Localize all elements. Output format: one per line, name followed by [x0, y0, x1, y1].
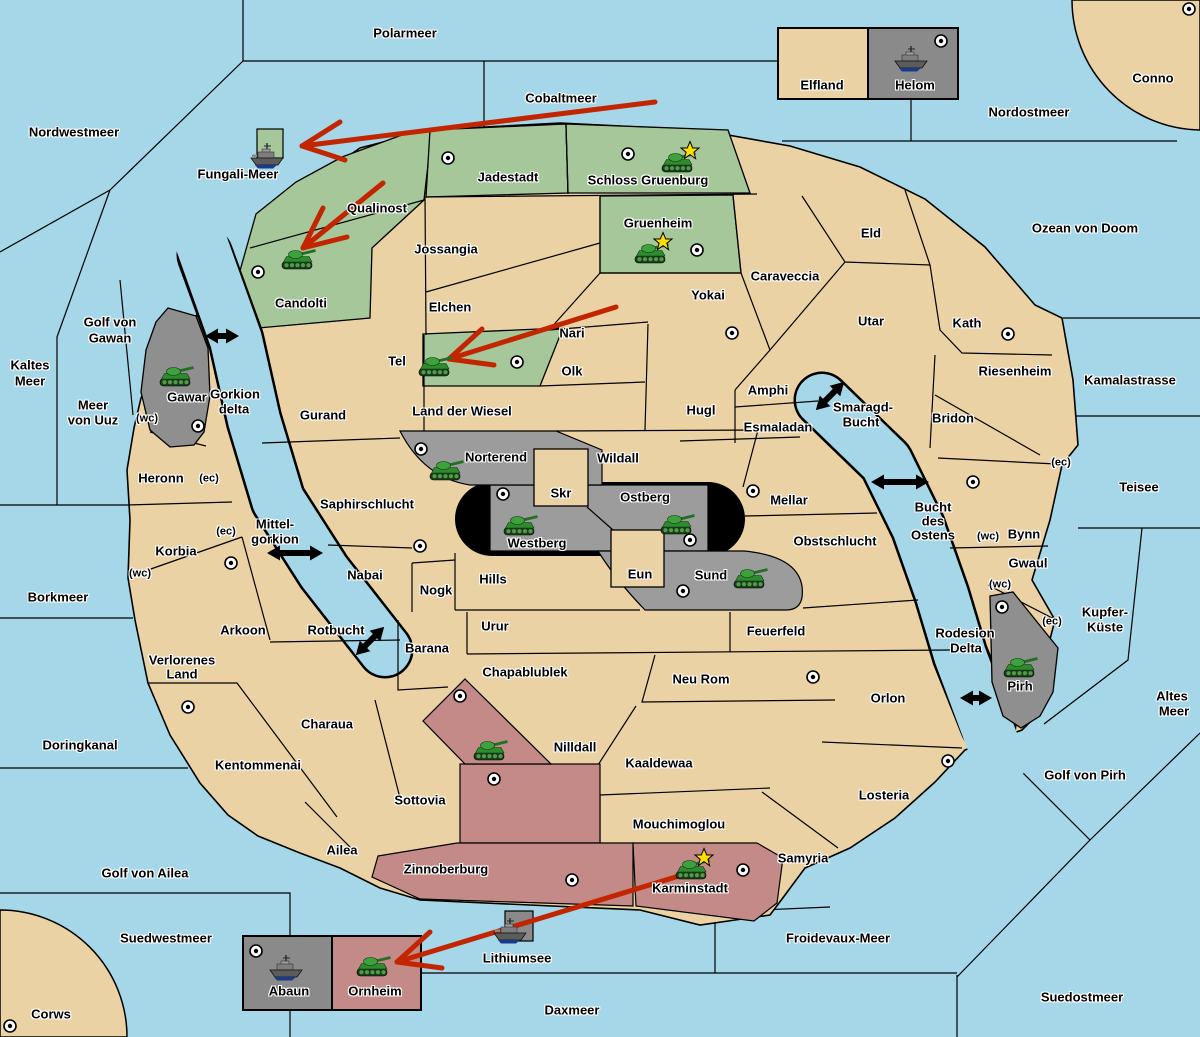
tank-wheel — [443, 370, 447, 374]
city-marker — [684, 534, 696, 546]
territory-conno[interactable] — [1072, 0, 1200, 130]
tank-wheel — [438, 474, 442, 478]
city-marker — [996, 601, 1008, 613]
ship-deckhouse — [902, 55, 918, 61]
tank-wheel — [482, 754, 486, 758]
tank-wheel — [284, 263, 288, 267]
tank-wheel — [1023, 671, 1027, 675]
tank-wheel — [681, 166, 685, 170]
tank-wheel — [1028, 671, 1032, 675]
city-marker — [488, 773, 500, 785]
tank-turret — [511, 517, 525, 525]
tank-wheel — [700, 873, 704, 877]
tank-wheel — [669, 528, 673, 532]
tank-turret — [364, 958, 378, 966]
tank-turret — [683, 861, 697, 869]
tank-wheel — [678, 873, 682, 877]
tank-turret — [1011, 659, 1025, 667]
tank-wheel — [476, 754, 480, 758]
city-dot — [1000, 605, 1004, 609]
tank-wheel — [648, 257, 652, 261]
tank-wheel — [736, 582, 740, 586]
tank-wheel — [168, 380, 172, 384]
city-marker — [747, 485, 759, 497]
tank-wheel — [359, 970, 363, 974]
territory-gruenheim[interactable] — [600, 195, 741, 273]
ship-gun — [495, 930, 500, 933]
tank-wheel — [421, 370, 425, 374]
tank-wheel — [674, 528, 678, 532]
tank-wheel — [686, 166, 690, 170]
tank-wheel — [742, 582, 746, 586]
city-dot — [730, 331, 734, 335]
sea-border — [243, 0, 778, 61]
city-dot — [254, 949, 258, 953]
tank-wheel — [654, 257, 658, 261]
city-marker — [497, 488, 509, 500]
territory-skr[interactable] — [534, 449, 588, 506]
tank-wheel — [506, 529, 510, 533]
tank-wheel — [758, 582, 762, 586]
tank-turret — [481, 742, 495, 750]
ship-waterline — [255, 165, 277, 169]
city-dot — [501, 492, 505, 496]
ship-deckhouse — [258, 152, 274, 158]
city-marker — [691, 244, 703, 256]
tank-wheel — [381, 970, 385, 974]
tank-wheel — [675, 166, 679, 170]
city-marker — [225, 557, 237, 569]
city-dot — [446, 156, 450, 160]
tank-wheel — [301, 263, 305, 267]
tank-wheel — [432, 370, 436, 374]
tank-wheel — [179, 380, 183, 384]
map-canvas — [0, 0, 1200, 1037]
city-dot — [741, 868, 745, 872]
city-dot — [811, 675, 815, 679]
ship-hull — [270, 970, 302, 977]
tank-wheel — [528, 529, 532, 533]
ship-gun — [252, 155, 257, 158]
city-marker — [250, 945, 262, 957]
city-marker — [192, 420, 204, 432]
city-marker — [942, 755, 954, 767]
tank-wheel — [370, 970, 374, 974]
city-dot — [419, 447, 423, 451]
tank-wheel — [1006, 671, 1010, 675]
city-marker — [737, 864, 749, 876]
city-dot — [751, 489, 755, 493]
city-dot — [688, 538, 692, 542]
territory-schloss-gruenburg[interactable] — [566, 124, 750, 193]
tank-wheel — [498, 754, 502, 758]
tank-wheel — [438, 370, 442, 374]
city-marker — [1183, 3, 1195, 15]
city-marker — [454, 690, 466, 702]
city-marker — [1002, 328, 1014, 340]
tank-turret — [289, 251, 303, 259]
city-dot — [971, 480, 975, 484]
tank-wheel — [184, 380, 188, 384]
tank-wheel — [685, 528, 689, 532]
tank-wheel — [695, 873, 699, 877]
tank-wheel — [664, 166, 668, 170]
city-dot — [458, 694, 462, 698]
ship-gun — [896, 58, 901, 61]
city-dot — [570, 878, 574, 882]
city-dot — [515, 360, 519, 364]
city-marker — [566, 874, 578, 886]
ship-gun — [271, 967, 276, 970]
city-marker — [726, 327, 738, 339]
city-marker — [511, 356, 523, 368]
tank-wheel — [523, 529, 527, 533]
tank-wheel — [290, 263, 294, 267]
tank-turret — [741, 570, 755, 578]
city-dot — [1006, 332, 1010, 336]
territory-rotheim[interactable] — [460, 764, 600, 843]
tank-wheel — [432, 474, 436, 478]
tank-wheel — [747, 582, 751, 586]
city-dot — [946, 759, 950, 763]
tank-wheel — [689, 873, 693, 877]
tank-wheel — [643, 257, 647, 261]
ship-deckhouse — [501, 927, 517, 933]
sea-border — [1044, 528, 1142, 724]
tank-wheel — [663, 528, 667, 532]
city-dot — [492, 777, 496, 781]
city-dot — [939, 39, 943, 43]
city-marker — [622, 148, 634, 160]
tank-wheel — [306, 263, 310, 267]
city-dot — [229, 561, 233, 565]
city-dot — [186, 705, 190, 709]
city-marker — [252, 266, 264, 278]
tank-wheel — [1017, 671, 1021, 675]
ship-hull — [251, 158, 283, 165]
city-dot — [418, 544, 422, 548]
territory-eun[interactable] — [611, 530, 664, 587]
tank-turret — [437, 462, 451, 470]
city-dot — [196, 424, 200, 428]
city-dot — [256, 270, 260, 274]
tank-wheel — [670, 166, 674, 170]
attack-arrow-head — [302, 146, 345, 160]
tank-wheel — [449, 474, 453, 478]
tank-wheel — [162, 380, 166, 384]
tank-wheel — [427, 370, 431, 374]
city-dot — [695, 248, 699, 252]
territory-corws[interactable] — [0, 910, 127, 1037]
city-marker — [677, 585, 689, 597]
city-marker — [967, 476, 979, 488]
tank-turret — [426, 358, 440, 366]
city-dot — [8, 1024, 12, 1028]
tank-wheel — [443, 474, 447, 478]
tank-wheel — [1012, 671, 1016, 675]
territory-elfland[interactable] — [778, 28, 868, 99]
tank-turret — [642, 245, 656, 253]
city-marker — [442, 152, 454, 164]
sea-border — [120, 280, 133, 415]
tank-wheel — [637, 257, 641, 261]
territory-tel[interactable] — [423, 328, 563, 386]
ship-waterline — [498, 940, 520, 944]
city-marker — [935, 35, 947, 47]
tank-wheel — [680, 528, 684, 532]
tank-wheel — [517, 529, 521, 533]
sea-border — [57, 190, 110, 505]
city-marker — [415, 443, 427, 455]
city-marker — [182, 701, 194, 713]
city-dot — [681, 589, 685, 593]
tank-turret — [669, 154, 683, 162]
ship-hull — [494, 933, 526, 940]
tank-wheel — [454, 474, 458, 478]
tank-turret — [668, 516, 682, 524]
city-dot — [1187, 7, 1191, 11]
city-marker — [414, 540, 426, 552]
tank-wheel — [487, 754, 491, 758]
ship-deckhouse — [277, 964, 293, 970]
ship-hull — [895, 61, 927, 68]
tank-wheel — [684, 873, 688, 877]
tank-wheel — [493, 754, 497, 758]
tank-wheel — [512, 529, 516, 533]
game-map[interactable]: PolarmeerNordwestmeerCobaltmeerFungali-M… — [0, 0, 1200, 1037]
tank-wheel — [753, 582, 757, 586]
tank-wheel — [295, 263, 299, 267]
tank-turret — [167, 368, 181, 376]
tank-wheel — [376, 970, 380, 974]
tank-wheel — [365, 970, 369, 974]
tank-wheel — [173, 380, 177, 384]
city-marker — [4, 1020, 16, 1032]
tank-wheel — [659, 257, 663, 261]
city-marker — [807, 671, 819, 683]
city-dot — [626, 152, 630, 156]
